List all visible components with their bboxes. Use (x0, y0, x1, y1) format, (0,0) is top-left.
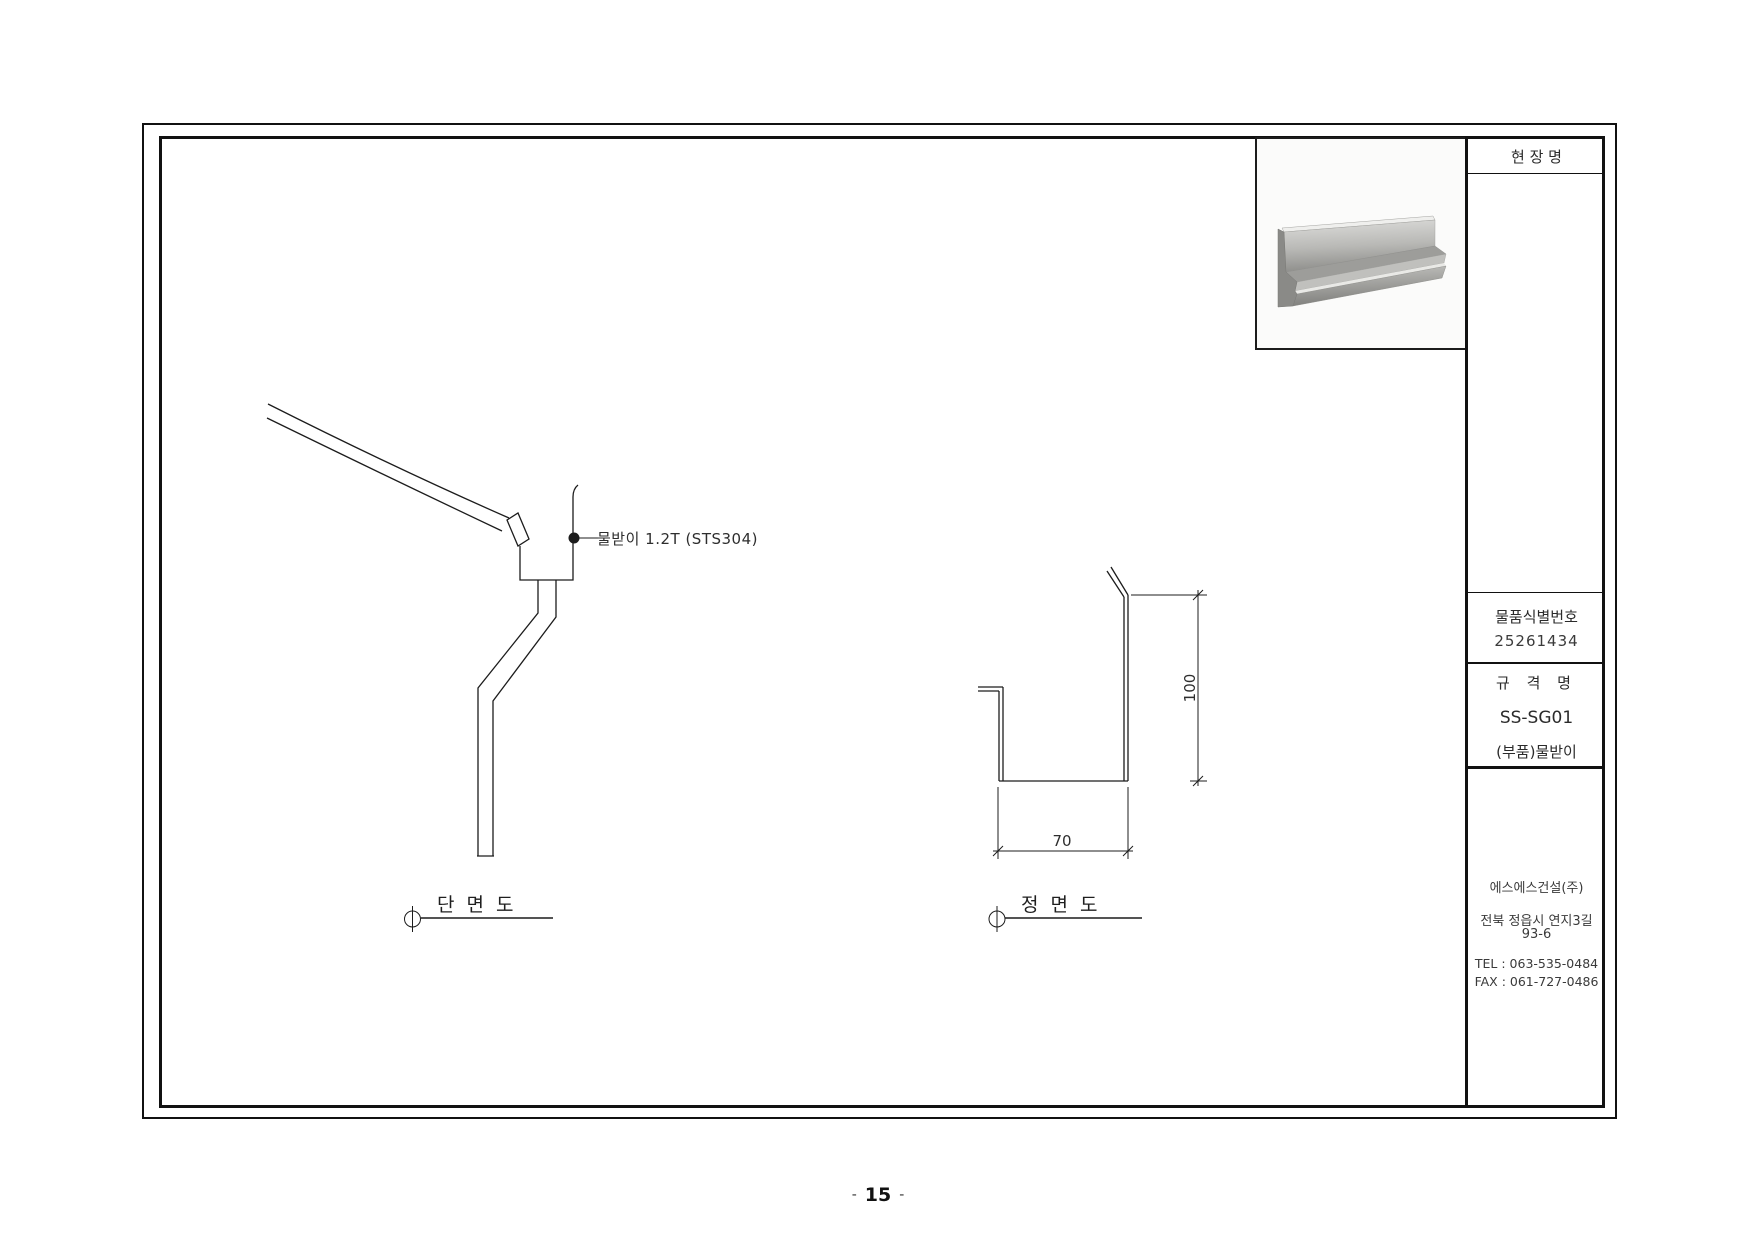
front-datum-symbol (989, 906, 1005, 932)
gutter-front-profile (978, 567, 1128, 781)
company-tel: TEL : 063-535-0484 (1468, 956, 1605, 971)
fascia-end-cap (507, 513, 529, 546)
material-annotation: 물받이 1.2T (STS304) (597, 528, 758, 549)
section-view-drawing (250, 390, 900, 960)
spec-part-name: (부품)물받이 (1468, 741, 1605, 762)
spec-model: SS-SG01 (1468, 708, 1605, 728)
company-name: 에스에스건설(주) (1468, 877, 1605, 896)
section-view-label: 단 면 도 (437, 890, 517, 917)
titleblock-divider (1468, 592, 1605, 593)
titleblock-divider (1468, 662, 1605, 664)
section-datum-symbol (405, 906, 421, 932)
gutter-profile (520, 485, 578, 580)
drawing-sheet: 현 장 명 물품식별번호 25261434 규 격 명 SS-SG01 (부품)… (0, 0, 1754, 1240)
width-dimension-label: 70 (1042, 832, 1082, 850)
leader-dot (569, 533, 580, 544)
company-fax: FAX : 061-727-0486 (1468, 974, 1605, 989)
page-number-value: 15 (865, 1184, 891, 1206)
front-view-label: 정 면 도 (1021, 890, 1101, 917)
page-number: -15- (838, 1184, 918, 1206)
site-name-label: 현 장 명 (1468, 146, 1605, 167)
titleblock-divider (1468, 173, 1605, 174)
roof-edge-lines (267, 404, 509, 531)
downpipe-outline (477, 580, 556, 856)
title-block: 현 장 명 물품식별번호 25261434 규 격 명 SS-SG01 (부품)… (1465, 136, 1605, 1108)
spec-label: 규 격 명 (1468, 672, 1605, 693)
item-id-value: 25261434 (1468, 632, 1605, 650)
page-number-left-dash: - (852, 1187, 857, 1203)
stainless-gutter-channel-image (1257, 139, 1465, 348)
item-id-label: 물품식별번호 (1468, 606, 1605, 627)
product-photo-box (1255, 137, 1467, 350)
height-dimension-label: 100 (1181, 668, 1199, 708)
page-number-right-dash: - (899, 1187, 904, 1203)
titleblock-divider (1468, 766, 1605, 769)
company-address-line2: 93-6 (1468, 927, 1605, 942)
